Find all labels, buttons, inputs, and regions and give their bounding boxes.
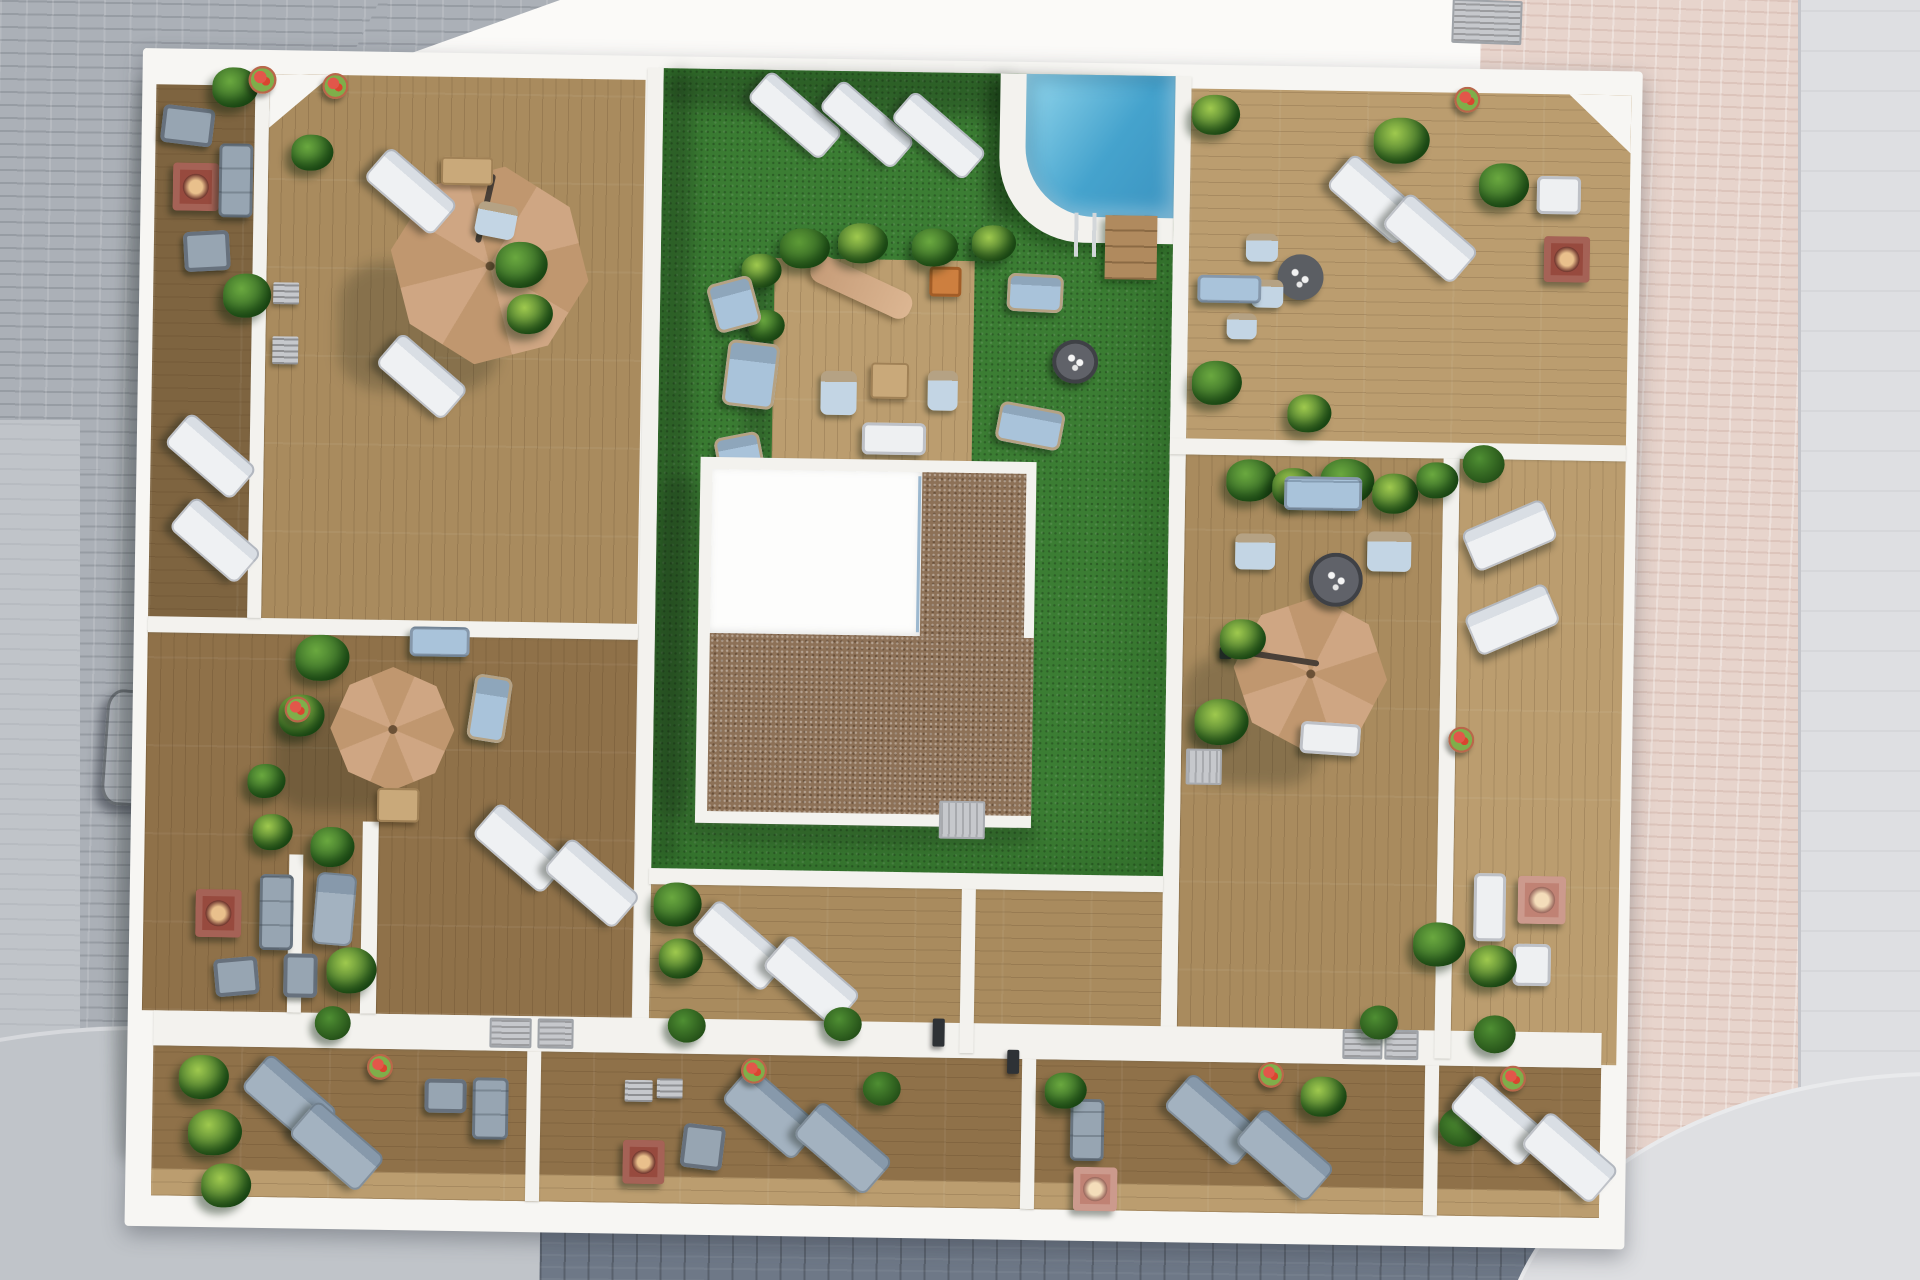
- rm-terrace-wicker-2: [1367, 531, 1412, 572]
- wall-vent-left-1: [489, 1018, 531, 1049]
- outer-rc-fire-table: [1073, 1167, 1118, 1212]
- outer-grill-1: [625, 1080, 653, 1102]
- wall-lamp-2: [1007, 1050, 1019, 1074]
- rs-strip-sofa: [1473, 873, 1506, 941]
- tr-terrace-wicker-3: [1227, 313, 1257, 339]
- tl-terrace-wicker-chair: [473, 200, 519, 241]
- bl-slice-fire-table: [195, 889, 242, 938]
- wall-vent-left-2: [537, 1018, 573, 1049]
- rs-strip-fire-table: [1517, 876, 1566, 925]
- umbrella-top-left-bench: [441, 157, 493, 186]
- west-terrace-grill-2: [272, 336, 298, 364]
- pergola-table: [871, 362, 910, 399]
- pergola-bench: [862, 422, 926, 455]
- core-roof-white: [710, 469, 923, 636]
- rm-terrace-mat: [1186, 748, 1223, 785]
- rooftop-building: [124, 48, 1642, 1249]
- west-terrace-grill-1: [273, 282, 299, 304]
- aerial-rooftop-render: [0, 0, 1920, 1280]
- lawn-sofa-west-2: [721, 339, 781, 411]
- parapet-bottom-inner-3: [959, 889, 976, 1053]
- outer-grill-2: [657, 1078, 683, 1098]
- poolside-lounger-1: [1006, 273, 1064, 314]
- rs-strip-armchair: [1512, 944, 1551, 987]
- pool-steps: [1104, 215, 1157, 280]
- core-roof-gravel-s: [707, 633, 1034, 816]
- tr-terrace-sofa-blue: [1197, 275, 1261, 304]
- parapet-outer-1: [525, 1051, 541, 1201]
- outer-center-fire-table: [622, 1140, 665, 1185]
- wall-lamp-1: [932, 1019, 944, 1047]
- tr-terrace-fire-table: [1543, 236, 1590, 283]
- bl-slice2-chair: [283, 953, 318, 998]
- west-terrace-armchair-1: [160, 104, 216, 148]
- core-roof-gravel-ne: [920, 472, 1027, 638]
- outer-left-sofa: [472, 1077, 509, 1140]
- west-terrace-fire-table: [172, 162, 219, 211]
- bl-slice2-lounger: [311, 872, 357, 947]
- west-terrace-armchair-2: [183, 230, 231, 272]
- outer-center-armchair: [679, 1123, 726, 1172]
- lm-terrace-sofa: [409, 626, 469, 657]
- rm-terrace-wicker-1: [1235, 533, 1276, 570]
- rm-terrace-sofa-blue: [1284, 476, 1363, 511]
- bl-slice-armchair: [213, 956, 260, 998]
- pergola-armchair-west: [820, 371, 857, 416]
- west-terrace-sofa: [218, 143, 253, 218]
- tr-terrace-armchair-white: [1537, 176, 1582, 215]
- parapet-outer-2: [1020, 1059, 1036, 1209]
- roof-vent-top: [1451, 0, 1522, 45]
- pergola-planter-orange: [929, 266, 961, 296]
- pool-ladder: [1074, 213, 1101, 257]
- outer-rc-sofa: [1070, 1099, 1105, 1162]
- tr-terrace-wicker-1: [1246, 233, 1278, 261]
- pergola-armchair-east: [927, 370, 958, 410]
- outer-left-armchair: [424, 1079, 467, 1114]
- rm-terrace-ottoman: [1299, 721, 1361, 757]
- pool-water: [1024, 74, 1175, 218]
- parapet-outer-3: [1423, 1065, 1439, 1215]
- core-ac-unit: [939, 801, 986, 840]
- umbrella-left-middle-table: [377, 788, 420, 823]
- bl-slice-sofa: [259, 874, 294, 951]
